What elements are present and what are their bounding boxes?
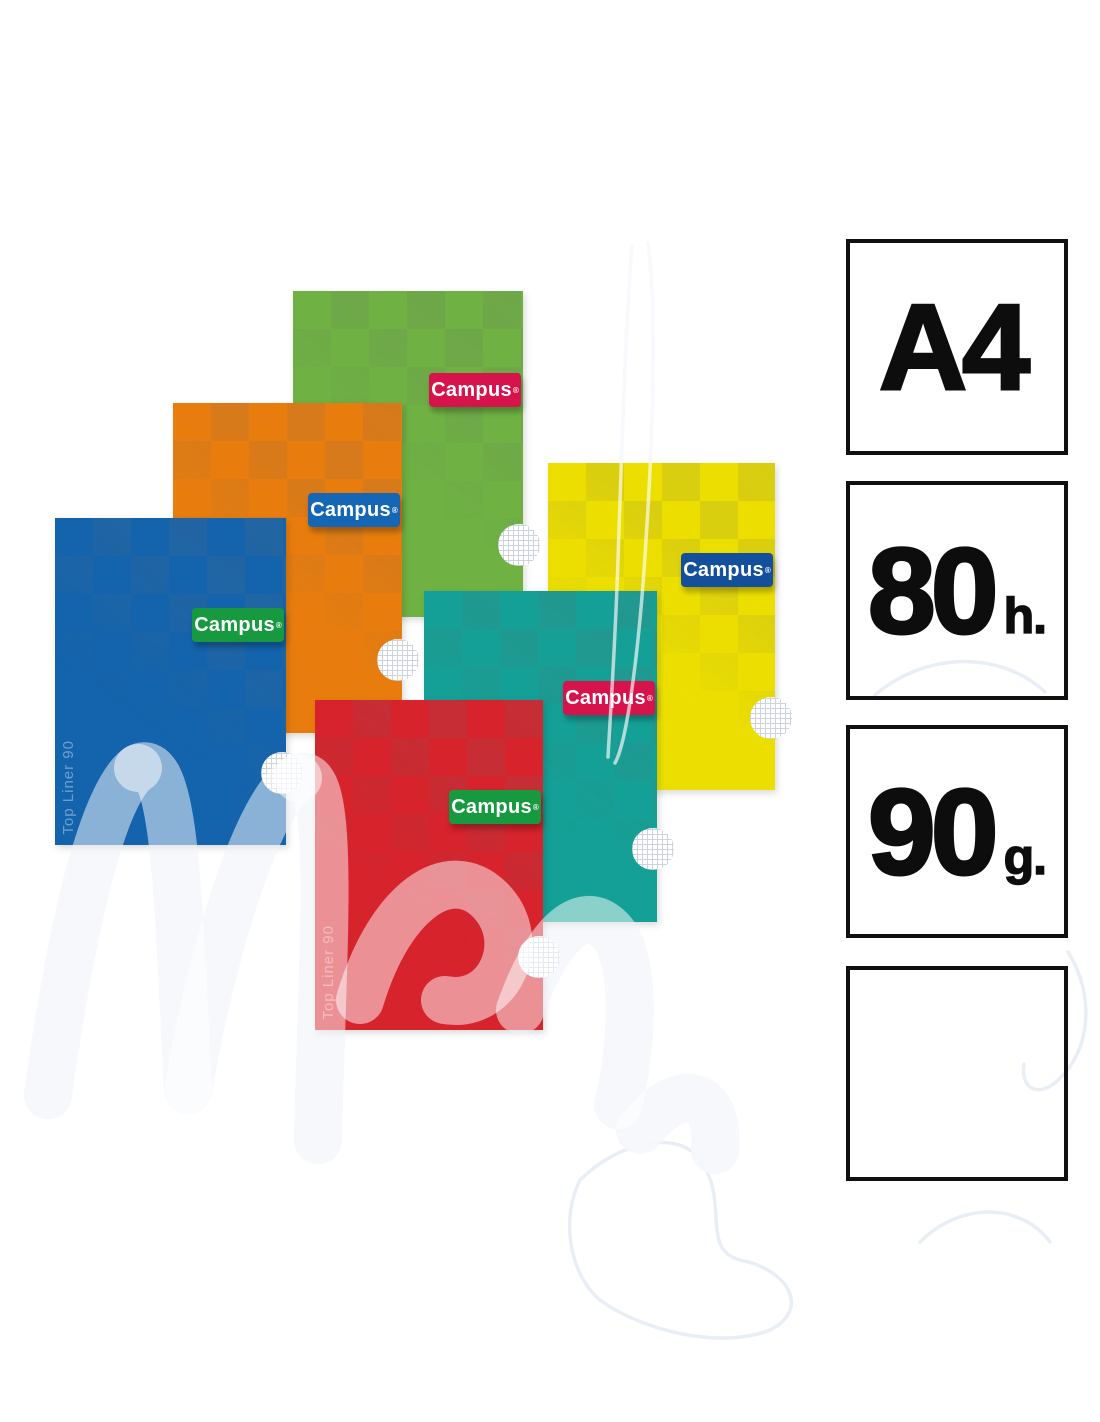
punch-hole-grid bbox=[377, 639, 419, 681]
punch-hole-grid bbox=[632, 828, 674, 870]
punch-hole-grid bbox=[498, 524, 540, 566]
notebook-blue: Top Liner 90 Campus® bbox=[55, 518, 286, 845]
brand-label-text: Campus bbox=[451, 796, 532, 819]
notebook-collage: Top Liner 90 Campus® Top Liner 90 Campus… bbox=[0, 0, 1100, 1422]
spec-box-grammage-90g: 90g. bbox=[846, 725, 1068, 938]
campus-brand-label: Campus® bbox=[563, 681, 655, 715]
campus-brand-label: Campus® bbox=[681, 553, 773, 587]
spec-unit: g. bbox=[1004, 828, 1046, 886]
punch-hole-grid bbox=[518, 936, 560, 978]
registered-mark: ® bbox=[392, 506, 398, 515]
punch-hole-grid bbox=[750, 697, 792, 739]
spec-value: A4 bbox=[879, 286, 1025, 408]
campus-brand-label: Campus® bbox=[429, 373, 521, 407]
spec-box-size-a4: A4 bbox=[846, 239, 1068, 455]
spine-text: Top Liner 90 bbox=[320, 925, 337, 1020]
spec-value: 80 bbox=[868, 530, 994, 652]
spec-box-sheets-80h: 80h. bbox=[846, 481, 1068, 700]
campus-brand-label: Campus® bbox=[192, 608, 284, 642]
brand-label-text: Campus bbox=[431, 379, 512, 402]
campus-brand-label: Campus® bbox=[449, 790, 541, 824]
brand-label-text: Campus bbox=[683, 559, 764, 582]
registered-mark: ® bbox=[765, 566, 771, 575]
spine-text: Top Liner 90 bbox=[60, 740, 77, 835]
registered-mark: ® bbox=[647, 694, 653, 703]
registered-mark: ® bbox=[276, 621, 282, 630]
spec-box-empty bbox=[846, 966, 1068, 1181]
campus-brand-label: Campus® bbox=[308, 493, 400, 527]
registered-mark: ® bbox=[513, 386, 519, 395]
brand-label-text: Campus bbox=[194, 614, 275, 637]
notebook-red: Top Liner 90 Campus® bbox=[315, 700, 543, 1030]
spec-unit: h. bbox=[1004, 587, 1046, 645]
product-image: Top Liner 90 Campus® Top Liner 90 Campus… bbox=[0, 0, 1100, 1422]
punch-hole-grid bbox=[261, 752, 303, 794]
brand-label-text: Campus bbox=[310, 499, 391, 522]
spec-value: 90 bbox=[868, 771, 994, 893]
brand-label-text: Campus bbox=[565, 687, 646, 710]
registered-mark: ® bbox=[533, 803, 539, 812]
